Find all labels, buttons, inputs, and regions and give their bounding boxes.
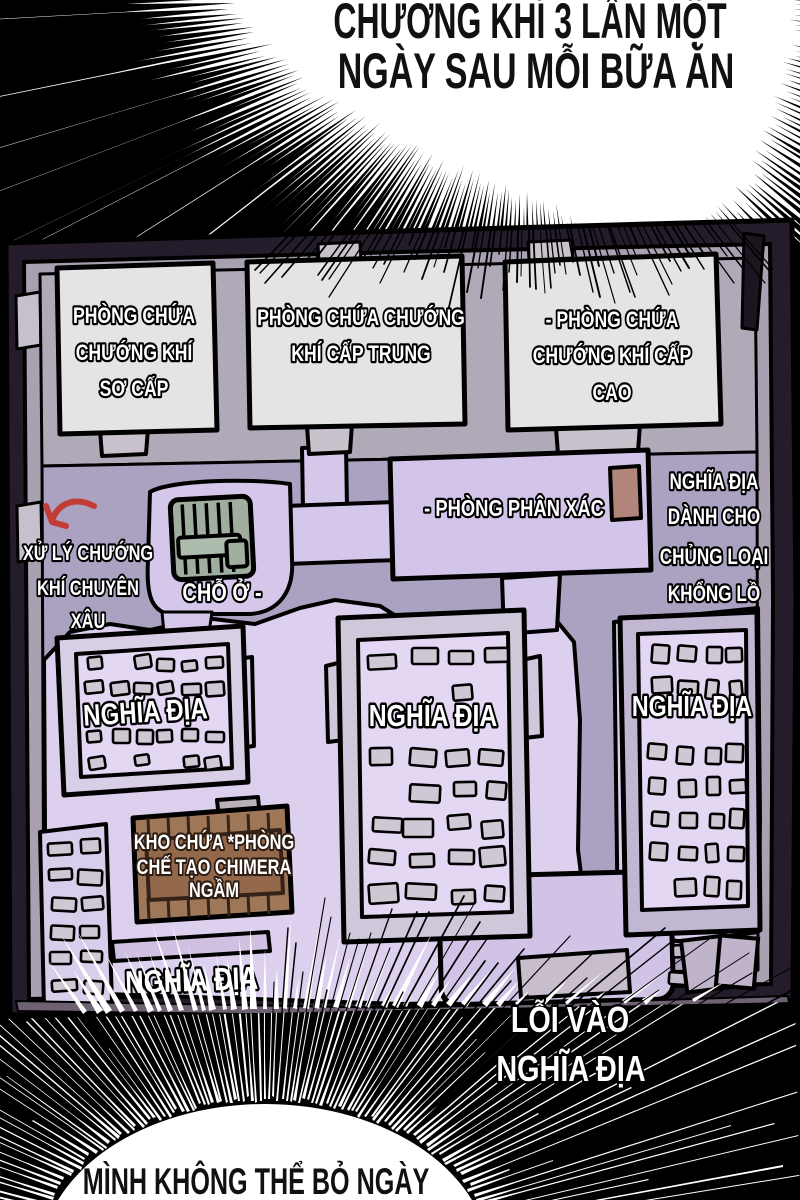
svg-text:CHẾ TẠO CHIMERA: CHẾ TẠO CHIMERA [137,855,292,878]
svg-text:CHƯƠNG KHÍ 3 LẦN MỘT: CHƯƠNG KHÍ 3 LẦN MỘT [333,0,727,49]
svg-text:CHƯỚNG KHÍ CẤP: CHƯỚNG KHÍ CẤP [533,342,692,369]
svg-text:- PHÒNG PHÂN XÁC: - PHÒNG PHÂN XÁC [424,495,604,522]
svg-text:NGHĨA ĐỊA: NGHĨA ĐỊA [632,689,752,722]
svg-text:PHÒNG CHỨA: PHÒNG CHỨA [73,302,195,329]
svg-text:SƠ CẤP: SƠ CẤP [100,376,169,401]
svg-text:XỬ LÝ CHƯỚNG: XỬ LÝ CHƯỚNG [23,541,153,564]
svg-text:NGHĨA ĐỊA: NGHĨA ĐỊA [369,698,498,732]
svg-text:NGẦM: NGẦM [189,878,239,901]
svg-text:NGHĨA ĐỊA: NGHĨA ĐỊA [670,469,759,495]
svg-text:DÀNH CHO: DÀNH CHO [668,504,760,530]
svg-text:NGHĨA ĐỊA: NGHĨA ĐỊA [496,1048,645,1089]
svg-text:KHỔNG LỒ: KHỔNG LỒ [668,580,760,607]
svg-text:CHỖ Ở -: CHỖ Ở - [182,578,261,607]
svg-text:LỖI VÀO: LỖI VÀO [511,999,629,1040]
svg-text:PHÒNG CHỨA CHƯỚNG: PHÒNG CHỨA CHƯỚNG [257,304,465,331]
svg-text:KHO CHỨA *PHÒNG: KHO CHỨA *PHÒNG [134,830,294,853]
svg-text:CHƯỚNG KHÍ: CHƯỚNG KHÍ [76,339,193,366]
svg-text:- PHÒNG CHỨA: - PHÒNG CHỨA [546,306,679,333]
svg-text:CAO: CAO [592,381,631,405]
svg-text:MÌNH KHÔNG THỂ BỎ NGÀY: MÌNH KHÔNG THỂ BỎ NGÀY [83,1160,430,1200]
svg-text:KHÍ CẤP TRUNG: KHÍ CẤP TRUNG [291,341,430,366]
svg-text:KHÍ CHUYÊN: KHÍ CHUYÊN [37,576,139,599]
svg-text:XÂU: XÂU [71,609,106,632]
svg-text:CHỦNG LOẠI: CHỦNG LOẠI [660,543,769,570]
svg-text:NGÀY SAU MỖI BỮA ĂN: NGÀY SAU MỖI BỮA ĂN [338,42,735,99]
